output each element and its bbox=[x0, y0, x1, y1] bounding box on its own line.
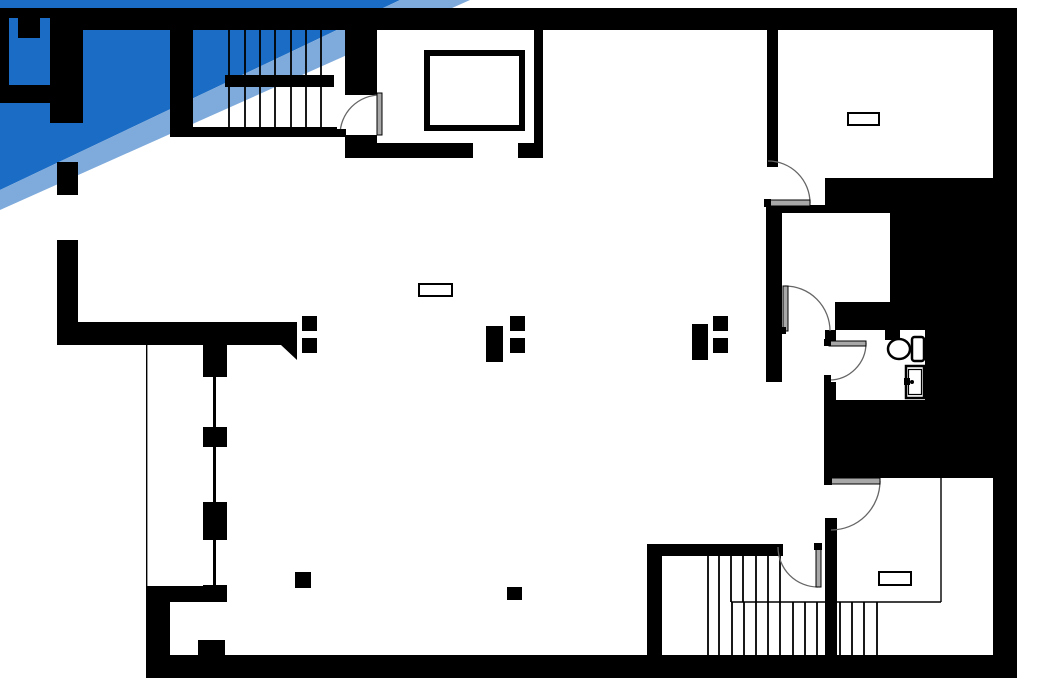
wall-end-chamfer bbox=[281, 345, 297, 360]
column-cluster-right bbox=[692, 316, 728, 360]
wall-bar-above-bottom-right-room bbox=[825, 460, 1017, 478]
door-hinge-block bbox=[779, 327, 786, 334]
left-wall-middle bbox=[57, 240, 78, 327]
elevator-left-wall-upper bbox=[345, 30, 377, 95]
left-wall-lower bbox=[146, 602, 170, 678]
column bbox=[302, 338, 317, 353]
column bbox=[713, 338, 728, 353]
top-right-room-bottom-wall bbox=[825, 178, 1017, 205]
door-swing-arc bbox=[785, 286, 830, 331]
elevator-right-wall bbox=[534, 30, 543, 147]
doors bbox=[337, 93, 880, 587]
thin-partitions bbox=[147, 345, 941, 602]
door-hinge-block bbox=[764, 199, 771, 207]
stair1-stringer-bar bbox=[225, 75, 334, 87]
door-swing-arc bbox=[831, 481, 880, 530]
stair1-left-wall bbox=[170, 30, 193, 137]
window-mullion-2 bbox=[213, 447, 216, 502]
column-bottom-left bbox=[295, 572, 311, 588]
ceiling-light-icon bbox=[879, 572, 911, 585]
door-swing-arc bbox=[778, 547, 818, 587]
door-leaf bbox=[768, 200, 810, 206]
window-wall-pier-1 bbox=[203, 345, 227, 377]
door-leaf bbox=[830, 478, 880, 484]
window-mullion-1 bbox=[213, 377, 216, 427]
elevator-bottom-wall-left bbox=[345, 143, 473, 158]
window-wall-pier-3 bbox=[203, 502, 227, 540]
bottom-wall bbox=[146, 655, 1017, 678]
column-cluster-left bbox=[302, 316, 317, 353]
bottom-left-wall-stub bbox=[198, 640, 225, 662]
top-right-room-left-wall bbox=[767, 23, 778, 167]
toilet-bowl-icon bbox=[888, 339, 910, 359]
stair2-left-wall bbox=[647, 547, 662, 678]
column bbox=[692, 324, 708, 360]
ceiling-light-icon bbox=[848, 113, 879, 125]
column bbox=[510, 338, 525, 353]
window-mullion-3 bbox=[213, 540, 216, 585]
column-cluster-center bbox=[486, 316, 525, 362]
column bbox=[713, 316, 728, 331]
top-wall bbox=[0, 8, 1017, 30]
door-hinge-block bbox=[824, 375, 831, 382]
stair2-right-wall bbox=[825, 518, 837, 655]
door-leaf bbox=[816, 547, 821, 587]
door-leaf bbox=[783, 286, 788, 331]
door-leaf bbox=[377, 93, 382, 135]
column bbox=[510, 316, 525, 331]
staircase-bottom-right bbox=[708, 556, 877, 655]
corner-notch-2 bbox=[40, 18, 50, 30]
stair1-bottom-wall bbox=[170, 127, 337, 137]
column bbox=[302, 316, 317, 331]
wall-mass-above-bathroom bbox=[835, 302, 890, 330]
toilet-tank-icon bbox=[912, 337, 924, 361]
floor-plan-page bbox=[0, 0, 1058, 686]
ceiling-light-icon bbox=[419, 284, 452, 296]
door-hinge-block bbox=[824, 339, 831, 346]
corridor-left-wall bbox=[766, 203, 782, 382]
vestibule-wall-horizontal bbox=[0, 85, 58, 103]
door-leaf bbox=[829, 341, 866, 346]
sink-faucet-icon bbox=[904, 378, 910, 385]
column bbox=[486, 326, 503, 362]
window-wall-pier-2 bbox=[203, 427, 227, 447]
stair2-top-wall bbox=[647, 544, 783, 556]
bathroom-left-wall bbox=[824, 382, 837, 400]
bottom-left-room-top-wall bbox=[146, 586, 225, 602]
interior-wall-horizontal-left bbox=[57, 322, 297, 345]
column-bottom-center bbox=[507, 587, 522, 600]
column-left-upper bbox=[57, 162, 78, 195]
door-swing-arc bbox=[768, 161, 810, 203]
floor-plan-canvas bbox=[0, 0, 1058, 686]
door-hinge-block bbox=[824, 477, 832, 485]
corner-step-block bbox=[18, 30, 40, 38]
corner-notch-1 bbox=[9, 18, 18, 33]
door-hinge-block bbox=[814, 543, 822, 550]
vestibule-wall-vertical bbox=[50, 30, 83, 123]
elevator-cab bbox=[427, 53, 522, 128]
sink-drain-icon bbox=[910, 380, 914, 384]
door-hinge-block bbox=[337, 129, 346, 137]
